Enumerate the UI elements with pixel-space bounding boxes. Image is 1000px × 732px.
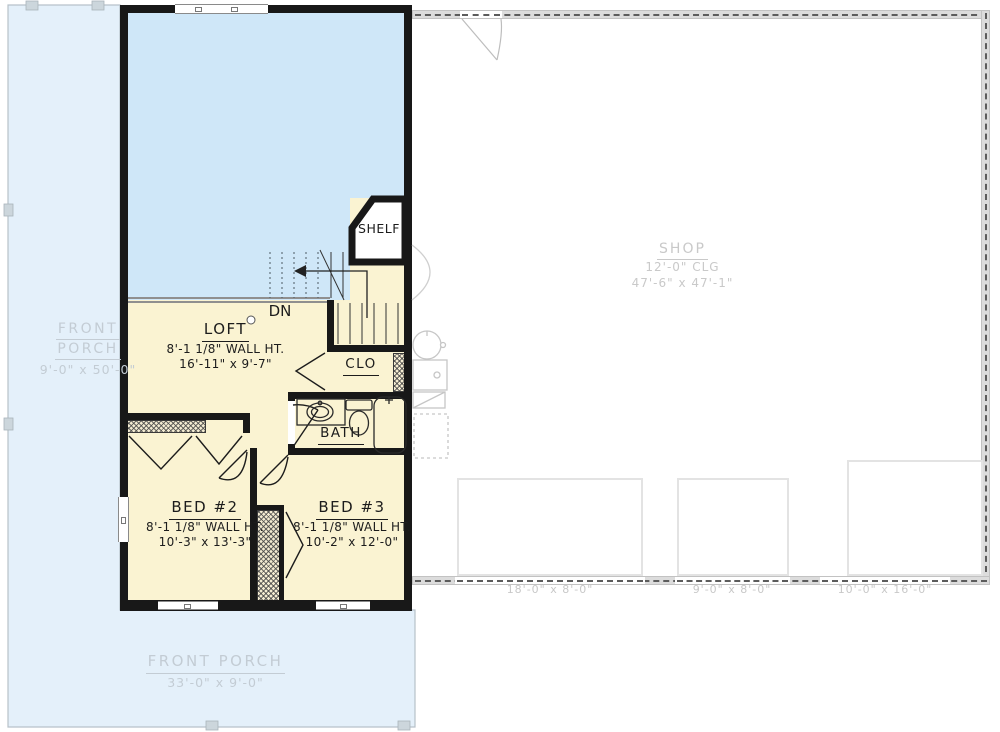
wall-stair-clo [327,300,334,352]
overhead-door-dash [677,580,788,582]
shop-label: SHOP 12'-0" CLG 47'-6" x 47'-1" [595,240,770,291]
porch-bottom-title: FRONT PORCH [118,652,313,674]
utility-chute [413,392,445,408]
shop-ceiling: 12'-0" CLG [595,260,770,276]
utility-box [413,360,447,390]
overhead-door-dash [457,580,643,582]
wall-clo-top [327,345,412,352]
loft-name: LOFT [138,320,313,342]
bed2-label: BED #2 8'-1 1/8" WALL HT. 10'-3" x 13'-3… [126,498,284,551]
loft-dims: 16'-11" x 9'-7" [138,357,313,373]
stairs-dn-label: DN [262,302,298,322]
shop-dims: 47'-6" x 47'-1" [595,276,770,292]
window-mullion [195,7,202,12]
bed3-dims: 10'-2" x 12'-0" [272,535,432,551]
overhead-door-dim-3: 10'-0" x 16'-0" [818,583,952,596]
bath-label: BATH [306,425,376,445]
loft-label: LOFT 8'-1 1/8" WALL HT. 16'-11" x 9'-7" [138,320,313,373]
shelf-label: SHELF [352,221,406,237]
bed3-wall-height: 8'-1 1/8" WALL HT. [272,520,432,536]
window-mullion [340,604,347,609]
bed2-wall-height: 8'-1 1/8" WALL HT. [126,520,284,536]
overhead-door-dim-1: 18'-0" x 8'-0" [455,583,645,596]
overhead-door-track-2 [677,478,789,576]
shop-entry-door-swing [462,19,502,60]
front-porch-left-label: FRONT PORCH 9'-0" x 50'-0" [28,320,148,379]
shop-name: SHOP [595,240,770,260]
window-bottom-bed2 [158,601,218,610]
overhead-door-dim-2: 9'-0" x 8'-0" [672,583,792,596]
porch-bottom-dims: 33'-0" x 9'-0" [118,675,313,691]
window-mullion [231,7,238,12]
water-heater [413,331,441,359]
shop-entry-door-opening [460,11,502,18]
window-bottom-bed3 [316,601,370,610]
shop-utility-fixtures [412,245,448,458]
bed2-dims: 10'-3" x 13'-3" [126,535,284,551]
shop-side-door-swing [412,245,430,300]
bed3-name: BED #3 [272,498,432,520]
floor-plan: FRONT PORCH 9'-0" x 50'-0" LOFT 8'-1 1/8… [0,0,1000,732]
clo-label: CLO [331,356,391,376]
utility-dashed-area [414,414,448,458]
front-porch-bottom-label: FRONT PORCH 33'-0" x 9'-0" [118,652,313,691]
window-mullion [184,604,191,609]
porch-title-line2: PORCH [28,340,148,360]
wall-bath-bottom [288,448,412,455]
loft-railing [124,297,330,303]
loft-wall-height: 8'-1 1/8" WALL HT. [138,342,313,358]
bed2-closet-shelf-hatch [126,420,206,433]
window-top [175,4,268,14]
bed3-label: BED #3 8'-1 1/8" WALL HT. 10'-2" x 12'-0… [272,498,432,551]
bath-door-opening [288,401,295,444]
shop-wall-dash [985,13,987,582]
porch-dims: 9'-0" x 50'-0" [28,362,148,378]
wall-bed2-closet-top [124,413,250,420]
overhead-door-dash [822,580,948,582]
wall-bath-top [288,392,412,399]
wall-bed2-closet-right [243,413,250,433]
overhead-door-track-1 [457,478,643,576]
overhead-door-track-3 [847,460,983,576]
porch-title-line1: FRONT [28,320,148,340]
shop-door-dash [462,14,500,16]
bed2-name: BED #2 [126,498,284,520]
